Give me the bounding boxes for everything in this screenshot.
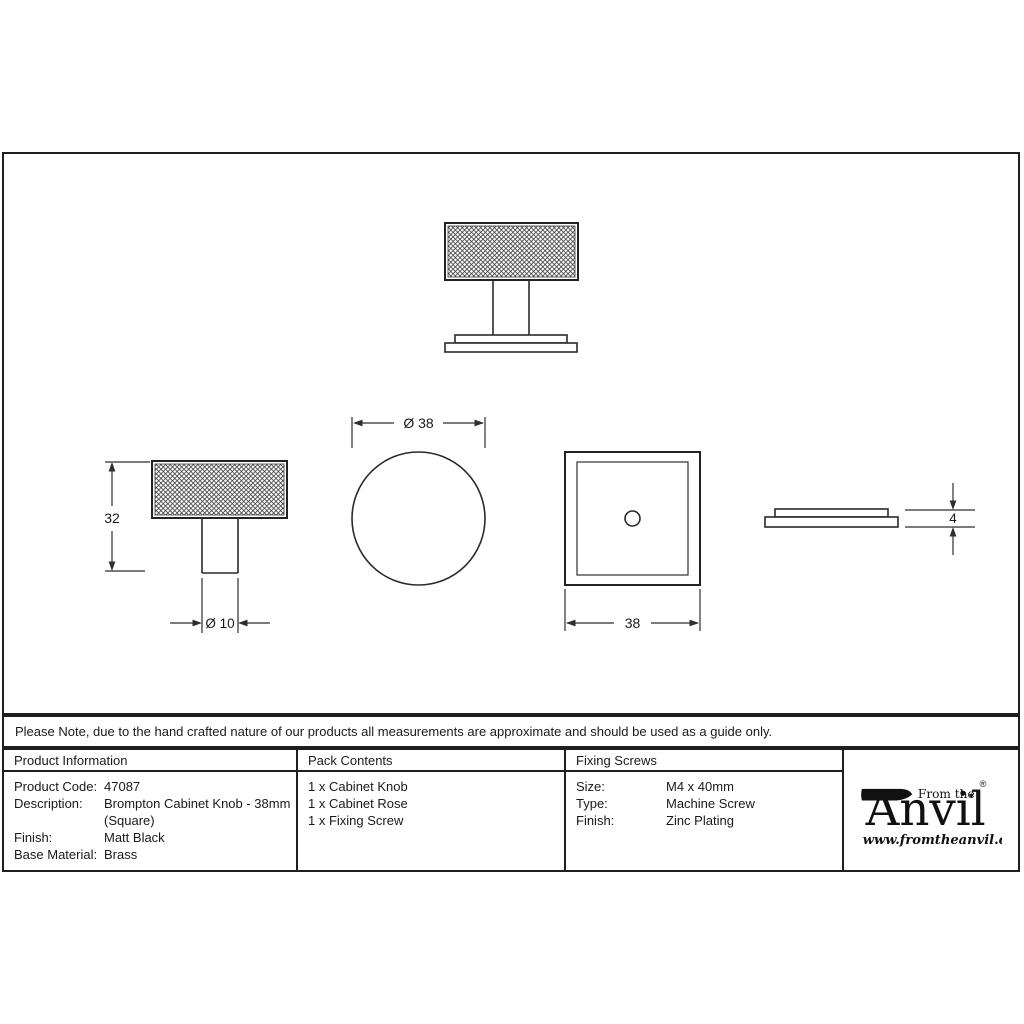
pack-contents-body: 1 x Cabinet Knob 1 x Cabinet Rose 1 x Fi… [298, 772, 564, 829]
anvil-icon [861, 789, 912, 801]
spec-value: Brass [104, 847, 137, 862]
spec-label: Base Material: [14, 846, 104, 863]
spec-sheet-page: { "note": "Please Note, due to the hand … [0, 0, 1024, 1024]
product-information-column: Product Information Product Code:47087 D… [4, 750, 298, 870]
spec-label: Product Code: [14, 778, 104, 795]
spec-value: 47087 [104, 779, 140, 794]
spec-row: Size:M4 x 40mm [576, 778, 832, 795]
spec-value: Brompton Cabinet Knob - 38mm [104, 796, 290, 811]
pack-contents-column: Pack Contents 1 x Cabinet Knob 1 x Cabin… [298, 750, 566, 870]
spec-label: Description: [14, 795, 104, 812]
spec-row: Base Material:Brass [14, 846, 286, 863]
measurement-note-strip: Please Note, due to the hand crafted nat… [2, 715, 1020, 748]
spec-label: Finish: [576, 812, 666, 829]
diamond-icon: ♦ [969, 790, 973, 800]
product-information-header: Product Information [4, 750, 296, 772]
brand-logo-cell: Anvil From the ♦ ® www.fromtheanvil.co.u… [844, 750, 1018, 870]
spec-row: Finish:Matt Black [14, 829, 286, 846]
brand-url: www.fromtheanvil.co.uk [863, 833, 1002, 848]
measurement-note-text: Please Note, due to the hand crafted nat… [15, 724, 772, 739]
spec-value: M4 x 40mm [666, 779, 734, 794]
spec-label: Finish: [14, 829, 104, 846]
product-information-body: Product Code:47087 Description:Brompton … [4, 772, 296, 863]
spec-value: (Square) [104, 813, 155, 828]
spec-value: Zinc Plating [666, 813, 734, 828]
pack-contents-header: Pack Contents [298, 750, 564, 772]
technical-drawing-frame [2, 152, 1020, 715]
pack-item: 1 x Cabinet Knob [308, 778, 554, 795]
pack-item: 1 x Fixing Screw [308, 812, 554, 829]
from-the-anvil-logo: Anvil From the ♦ ® www.fromtheanvil.co.u… [860, 772, 1002, 849]
spec-label: Size: [576, 778, 666, 795]
fixing-screws-column: Fixing Screws Size:M4 x 40mm Type:Machin… [566, 750, 844, 870]
spec-label: Type: [576, 795, 666, 812]
spec-row: Description:Brompton Cabinet Knob - 38mm [14, 795, 286, 812]
fixing-screws-body: Size:M4 x 40mm Type:Machine Screw Finish… [566, 772, 842, 829]
spec-value: Machine Screw [666, 796, 755, 811]
fixing-screws-header: Fixing Screws [566, 750, 842, 772]
pack-item: 1 x Cabinet Rose [308, 795, 554, 812]
registered-mark: ® [980, 779, 987, 789]
spec-row: Product Code:47087 [14, 778, 286, 795]
spec-row: Finish:Zinc Plating [576, 812, 832, 829]
spec-value: Matt Black [104, 830, 165, 845]
spec-row: (Square) [14, 812, 286, 829]
brand-prefix: From the [918, 787, 975, 801]
spec-table: Product Information Product Code:47087 D… [2, 748, 1020, 872]
spec-row: Type:Machine Screw [576, 795, 832, 812]
